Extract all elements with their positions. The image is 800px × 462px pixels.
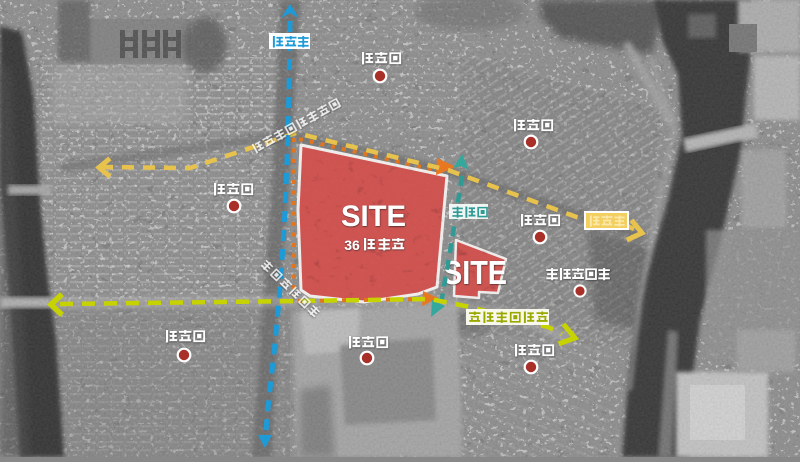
svg-text:SITE: SITE — [443, 254, 507, 291]
svg-text:SITE: SITE — [341, 200, 406, 233]
svg-text:36: 36 — [344, 237, 360, 253]
